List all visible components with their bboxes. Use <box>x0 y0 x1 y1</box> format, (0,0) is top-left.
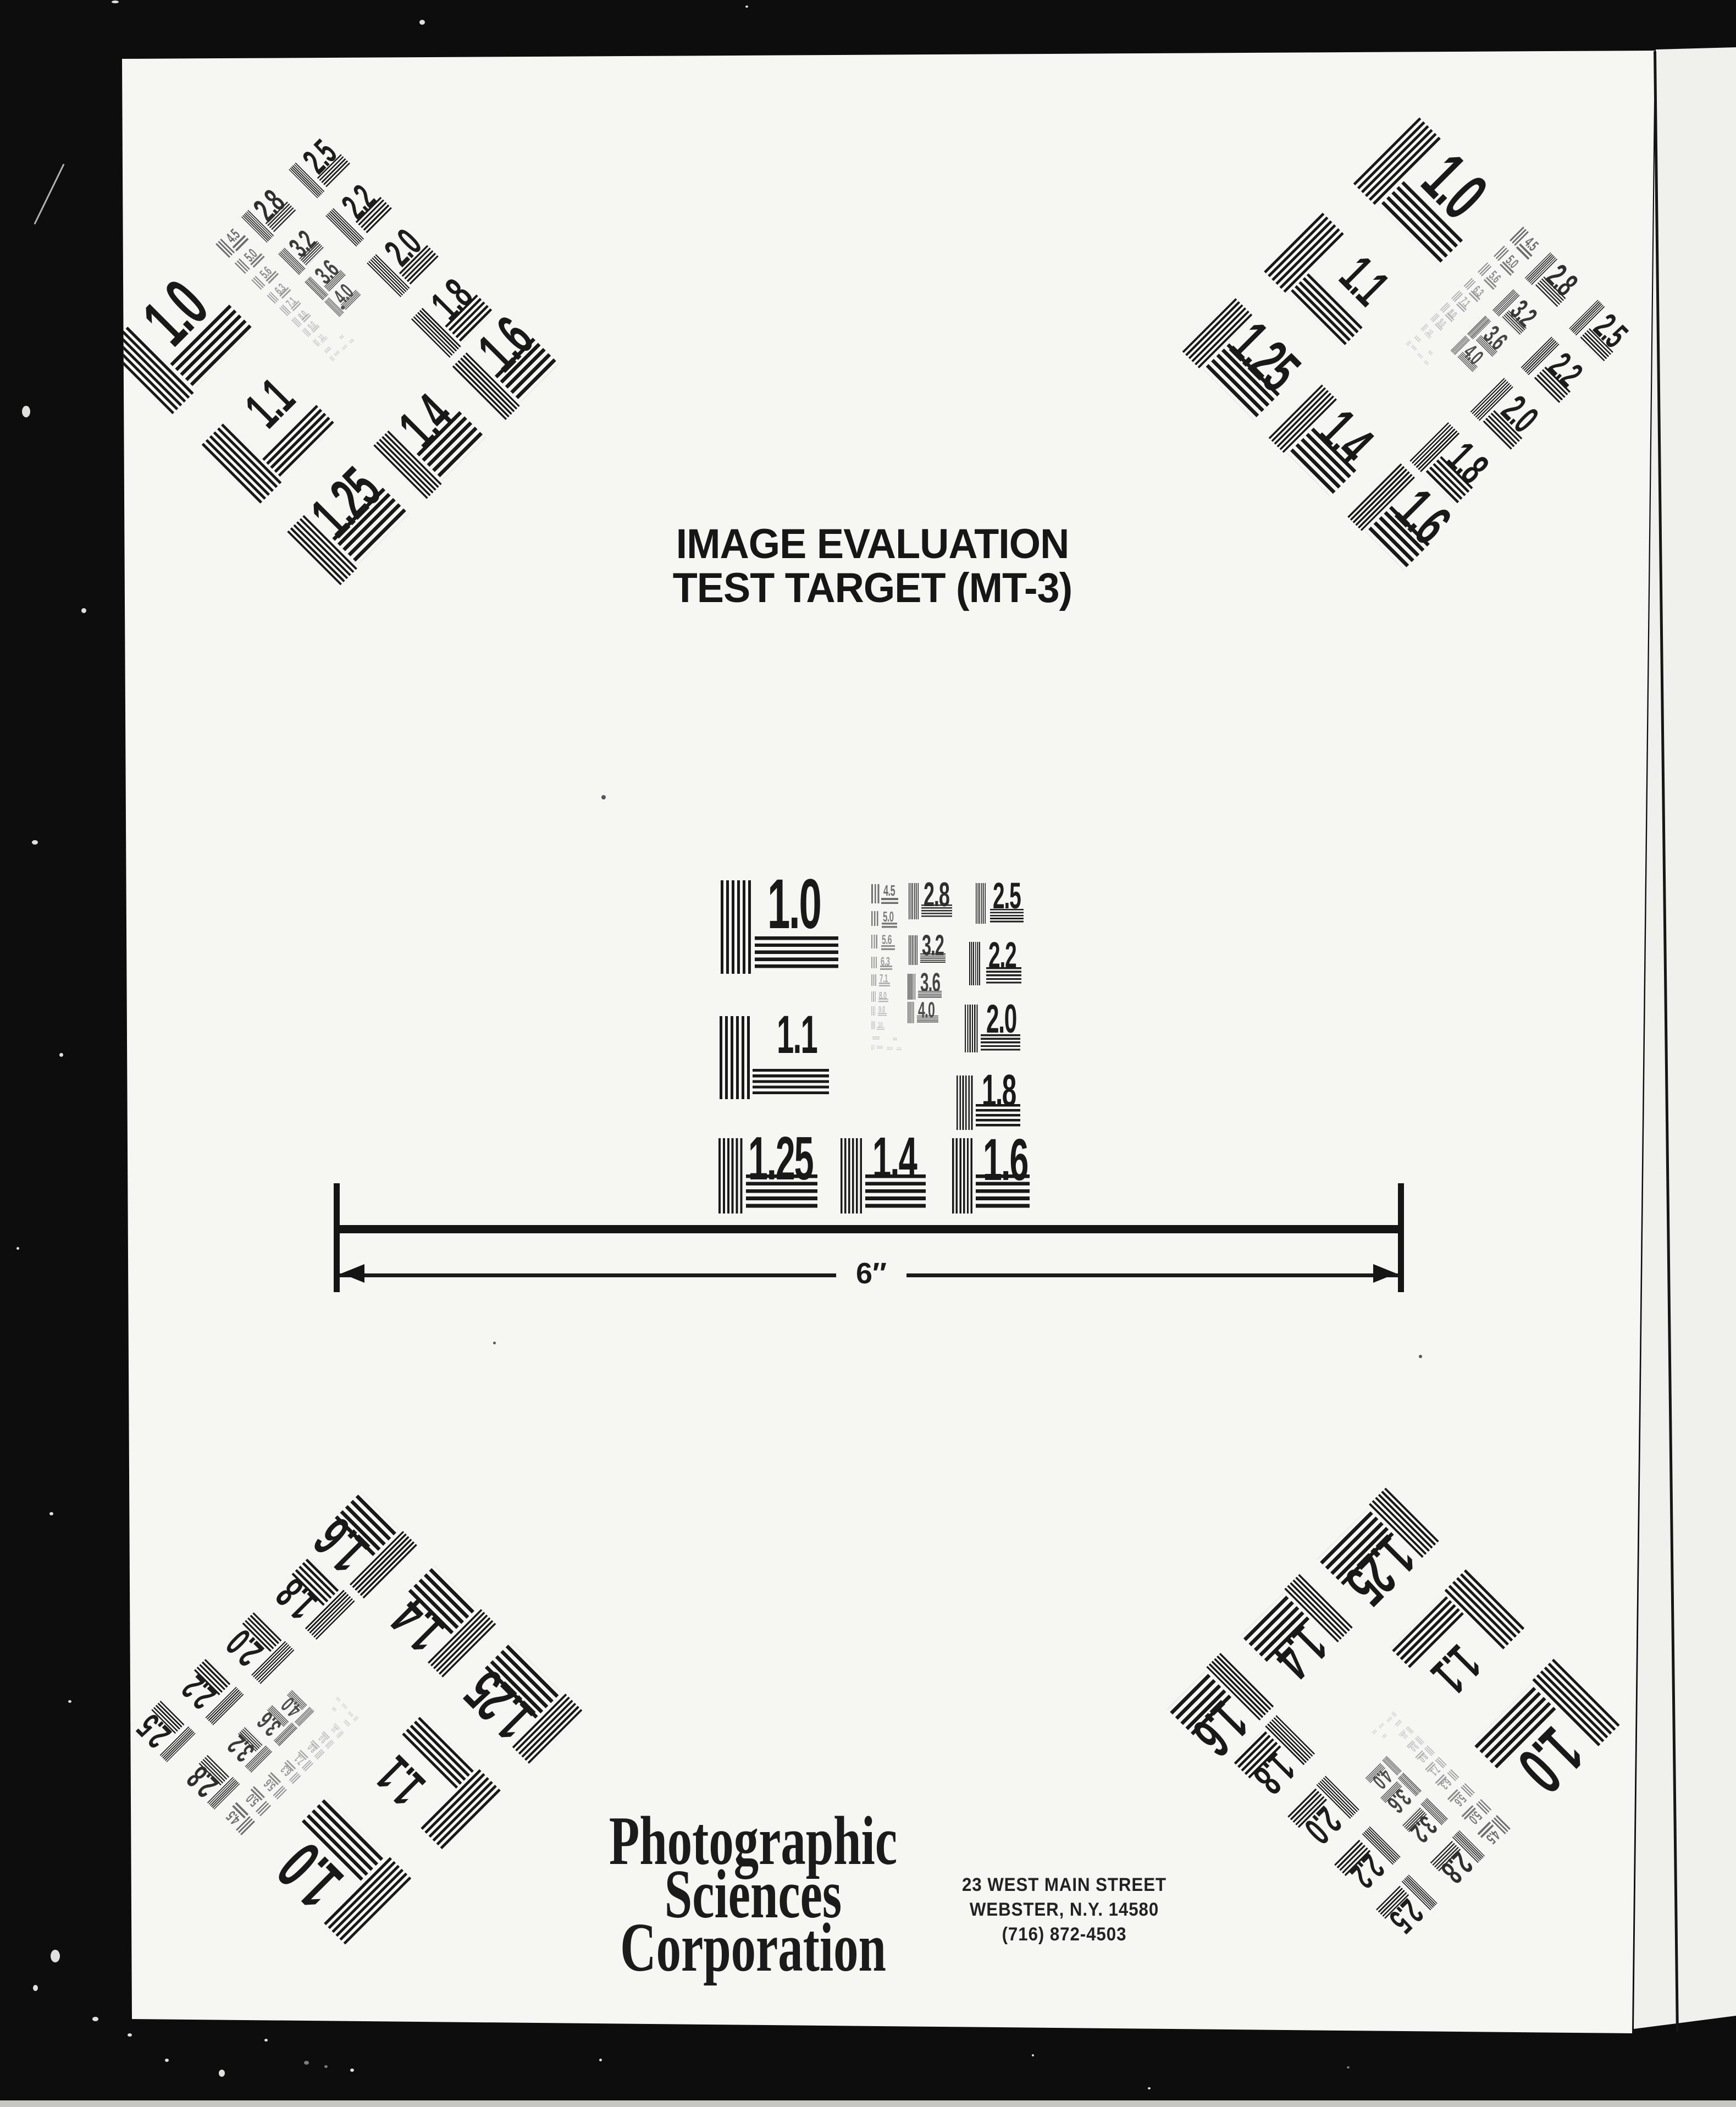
dust-speck <box>1347 2066 1350 2069</box>
bar-group-horizontal <box>1428 350 1433 356</box>
dust-speck <box>324 2065 328 2068</box>
bar-group-horizontal <box>897 1047 902 1051</box>
bar-group-vertical <box>871 974 877 986</box>
test-pattern-top-left: 1.01.11.251.41.61.82.02.22.52.83.23.64.0… <box>105 130 561 586</box>
resolution-number: 2.8 <box>924 878 949 912</box>
bar-group-horizontal <box>881 898 898 906</box>
bar-group-vertical <box>289 1772 301 1784</box>
bar-group-horizontal <box>343 1719 351 1727</box>
dust-speck <box>219 2070 225 2077</box>
resolution-number: 8.0 <box>879 991 887 1001</box>
bar-group-horizontal <box>887 1047 893 1050</box>
arrow-right-icon <box>1373 1264 1396 1283</box>
bar-group-horizontal <box>1394 1719 1402 1727</box>
resolution-number: 1.6 <box>983 1130 1027 1189</box>
bar-group-vertical <box>718 1138 744 1214</box>
resolution-number: 9.0 <box>878 1006 885 1014</box>
bar-group-vertical <box>871 1021 875 1029</box>
bar-group-horizontal <box>1386 1716 1392 1723</box>
resolution-number: 1.4 <box>872 1129 916 1187</box>
dust-speck <box>165 2059 169 2062</box>
bar-group-horizontal <box>335 1696 341 1702</box>
bar-group-horizontal <box>893 1038 897 1041</box>
bar-group-vertical <box>965 1005 978 1052</box>
dust-speck <box>350 2069 354 2072</box>
resolution-number: 5.0 <box>1467 1809 1484 1827</box>
dust-speck <box>745 5 748 8</box>
dust-speck <box>22 406 30 417</box>
resolution-number: 5.6 <box>882 934 892 947</box>
dust-speck <box>1419 1355 1422 1358</box>
address-line-3: (716) 872-4503 <box>962 1922 1166 1947</box>
bar-group-horizontal <box>1423 360 1429 366</box>
dust-speck <box>16 1247 19 1250</box>
bar-group-vertical <box>952 1138 974 1214</box>
bar-group-horizontal <box>1417 352 1423 359</box>
resolution-number: 10 <box>317 333 325 341</box>
bar-group-vertical <box>969 942 981 985</box>
dust-speck <box>81 608 86 613</box>
bar-group-horizontal <box>753 1069 829 1097</box>
test-pattern-bottom-left: 1.01.11.251.41.61.82.02.22.52.83.23.64.0… <box>127 1491 583 1946</box>
bar-group-vertical <box>335 1730 344 1739</box>
bar-group-horizontal <box>324 346 331 354</box>
bar-group-vertical <box>329 355 335 361</box>
bar-group-vertical <box>352 1716 358 1722</box>
ruler-line <box>337 1225 1401 1233</box>
bar-group-vertical <box>871 911 879 926</box>
resolution-number: 1.25 <box>748 1128 813 1189</box>
dust-speck <box>51 1950 60 1962</box>
resolution-number: 4.5 <box>883 883 895 898</box>
bar-group-horizontal <box>877 1046 883 1049</box>
resolution-number: 1.8 <box>982 1068 1016 1113</box>
bar-group-vertical <box>957 1075 974 1130</box>
bar-group-vertical <box>721 880 753 974</box>
resolution-number: 6.3 <box>881 956 890 968</box>
dust-speck <box>49 1512 53 1515</box>
company-address: 23 WEST MAIN STREET WEBSTER, N.Y. 14580 … <box>962 1873 1166 1947</box>
page-title: IMAGE EVALUATION TEST TARGET (MT-3) <box>673 522 1072 610</box>
resolution-number: 8.0 <box>1417 1752 1429 1764</box>
dust-speck <box>68 1700 71 1703</box>
ruler-end-bar-left <box>334 1183 340 1292</box>
bar-group-horizontal <box>1378 1722 1385 1729</box>
bar-group-vertical <box>871 991 876 1002</box>
dust-speck <box>264 2039 268 2042</box>
bar-group-vertical <box>312 338 321 347</box>
resolution-number: 3.2 <box>922 931 944 960</box>
ruler-end-bar-right <box>1398 1183 1404 1292</box>
title-line-1: IMAGE EVALUATION <box>673 522 1072 566</box>
scanned-frame: IMAGE EVALUATION TEST TARGET (MT-3) 1.01… <box>0 0 1736 2107</box>
bar-group-vertical <box>720 1016 751 1099</box>
bar-group-horizontal <box>349 338 355 344</box>
bar-group-horizontal <box>334 350 340 357</box>
bar-group-vertical <box>976 883 986 924</box>
resolution-number: 4.0 <box>918 999 935 1021</box>
bar-group-horizontal <box>1372 1729 1378 1735</box>
dust-speck <box>304 2061 309 2065</box>
bar-group-vertical <box>908 974 916 1000</box>
dust-speck <box>419 20 425 25</box>
address-line-2: WEBSTER, N.Y. 14580 <box>962 1898 1166 1922</box>
bar-group-horizontal <box>1413 335 1421 343</box>
bar-group-vertical <box>871 957 877 968</box>
resolution-number: 2.2 <box>988 937 1016 974</box>
dust-speck <box>59 1053 63 1057</box>
bar-group-vertical <box>273 1785 287 1800</box>
resolution-number: 10 <box>1426 328 1435 337</box>
dust-speck <box>92 2017 98 2021</box>
arrow-left-icon <box>341 1264 364 1283</box>
resolution-number: 10 <box>878 1021 883 1028</box>
resolution-number: 1.1 <box>367 1749 433 1814</box>
bar-group-vertical <box>908 1002 914 1023</box>
company-line-3: Corporation <box>609 1921 897 1974</box>
bar-group-horizontal <box>331 1706 337 1712</box>
resolution-number: 1.1 <box>236 370 302 436</box>
film-scratch <box>34 164 64 225</box>
dust-speck <box>1032 2054 1034 2056</box>
dust-speck <box>112 1 119 3</box>
dust-speck <box>601 795 606 799</box>
bar-group-horizontal <box>872 1036 880 1040</box>
resolution-number: 5.0 <box>883 909 894 924</box>
company-name: Photographic Sciences Corporation <box>609 1814 897 1974</box>
resolution-number: 2.5 <box>993 878 1021 914</box>
resolution-number: 1.1 <box>1331 247 1397 313</box>
bar-group-vertical <box>325 1739 335 1749</box>
test-pattern-top-right: 1.01.11.251.41.61.82.02.22.52.83.23.64.0… <box>1182 116 1638 572</box>
bar-group-horizontal <box>341 344 348 351</box>
dust-speck <box>128 2033 132 2037</box>
bar-group-horizontal <box>347 1711 354 1717</box>
bar-group-vertical <box>841 1138 863 1214</box>
test-pattern-bottom-right: 1.01.11.251.41.61.82.02.22.52.83.23.64.0… <box>1166 1488 1622 1944</box>
ruler-length-label: 6″ <box>836 1257 906 1290</box>
title-line-2: TEST TARGET (MT-3) <box>673 566 1072 610</box>
dust-speck <box>341 306 345 310</box>
bar-group-horizontal <box>1381 1733 1387 1739</box>
bar-group-vertical <box>871 884 880 903</box>
bar-group-vertical <box>871 1006 876 1016</box>
dust-speck <box>493 1342 496 1344</box>
main-page: IMAGE EVALUATION TEST TARGET (MT-3) 1.01… <box>0 0 1736 2107</box>
bar-group-vertical <box>909 883 919 919</box>
bar-group-vertical <box>871 1045 875 1050</box>
bar-group-horizontal <box>341 1703 348 1709</box>
resolution-number: 1.1 <box>777 1008 817 1061</box>
bar-group-vertical <box>909 935 918 965</box>
resolution-number: 7.1 <box>880 973 888 984</box>
bar-group-vertical <box>871 935 878 948</box>
resolution-number: 2.0 <box>986 999 1016 1039</box>
bar-group-horizontal <box>339 334 345 340</box>
resolution-number: 1.0 <box>767 869 821 940</box>
bar-group-vertical <box>1405 1726 1414 1735</box>
dust-speck <box>1148 2087 1151 2089</box>
scanner-bed-edge <box>0 2100 1736 2107</box>
address-line-1: 23 WEST MAIN STREET <box>962 1873 1166 1898</box>
resolution-number: 3.6 <box>920 970 940 996</box>
dust-speck <box>599 2059 602 2061</box>
bar-group-horizontal <box>1411 345 1417 351</box>
resolution-number: 1.1 <box>1424 1636 1490 1702</box>
bar-group-vertical <box>1391 1711 1397 1717</box>
test-pattern-center: 1.01.11.251.41.61.82.02.22.52.83.23.64.0… <box>718 880 1030 1214</box>
resolution-number: 10 <box>1401 1731 1409 1740</box>
dust-speck <box>33 1985 38 1991</box>
dust-speck <box>32 840 38 845</box>
